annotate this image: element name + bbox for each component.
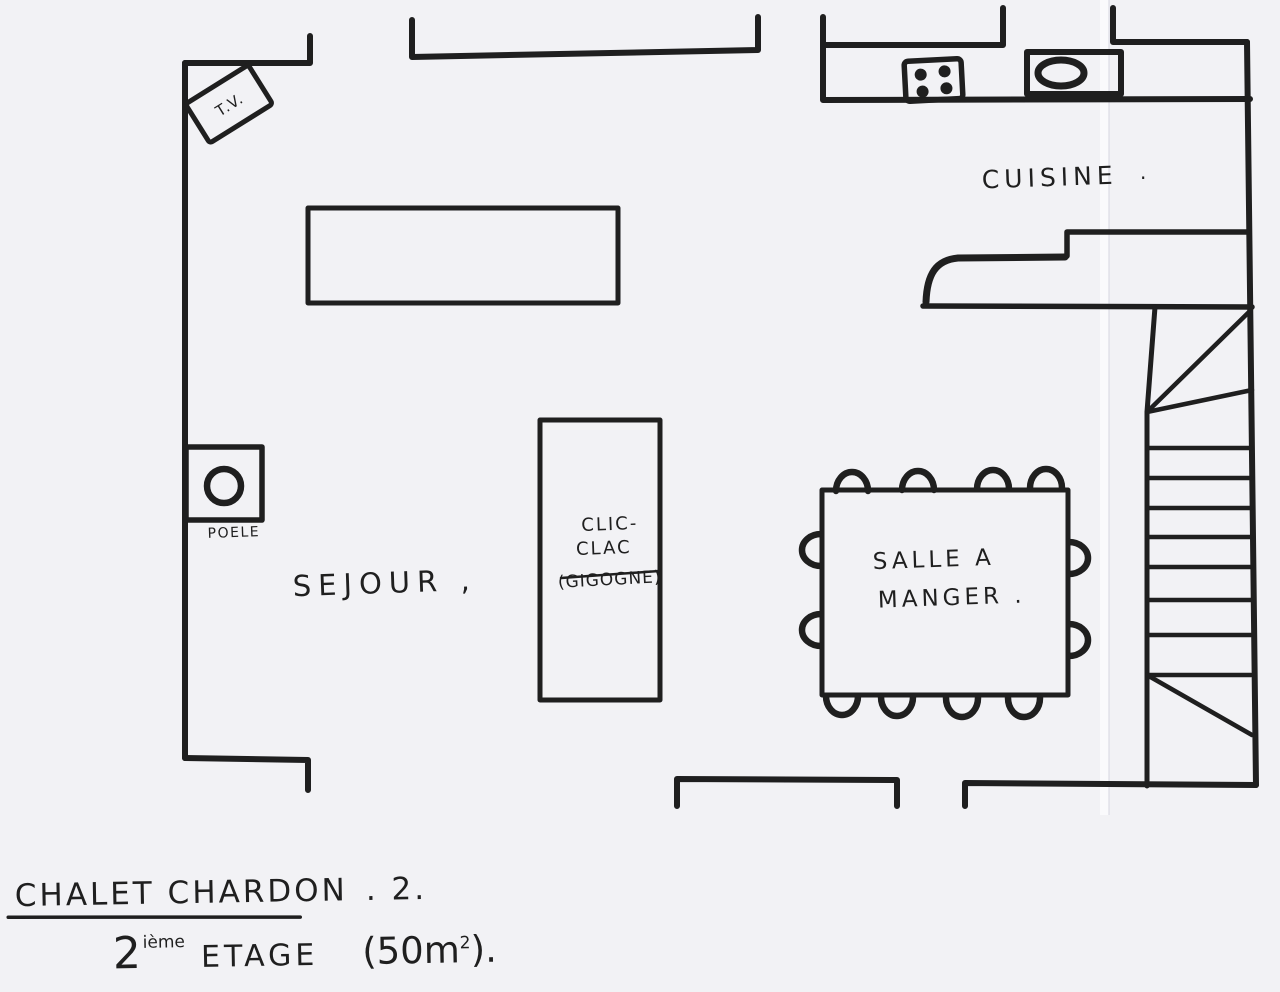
paper-background [0,0,1280,992]
scanned-floor-plan-page: T.V. POELE CLIC- CLAC (GIGOGNE) SALLE A … [0,0,1280,992]
sejour-label: SEJOUR , [292,563,477,603]
clic-clac-label-line2: CLAC [576,537,632,560]
cuisine-label-dot: . [1140,160,1146,184]
floor-number: 2 [112,928,141,979]
salle-a-manger-label-line2: MANGER . [877,582,1026,613]
poele-label: POELE [207,524,260,542]
cuisine-partition-wall [923,306,1252,307]
plan-title-suffix: . 2. [365,871,427,908]
salle-a-manger-label-line1: SALLE A [872,545,995,575]
scan-crease [1100,0,1109,815]
plan-title-text: CHALET CHARDON [15,872,349,914]
area-superscript: 2 [459,933,470,953]
floor-word: ETAGE [201,938,319,975]
cuisine-label: CUISINE [981,161,1118,195]
plan-title: CHALET CHARDON. 2. [15,871,428,914]
area-open: (50m [362,928,460,973]
area-close: ). [470,928,497,971]
clic-clac-label-line1: CLIC- [581,513,639,536]
floor-plan-svg: T.V. POELE CLIC- CLAC (GIGOGNE) SALLE A … [0,0,1280,992]
floor-ordinal-superscript: ième [143,932,186,953]
scan-crease-shadow [1108,0,1110,815]
